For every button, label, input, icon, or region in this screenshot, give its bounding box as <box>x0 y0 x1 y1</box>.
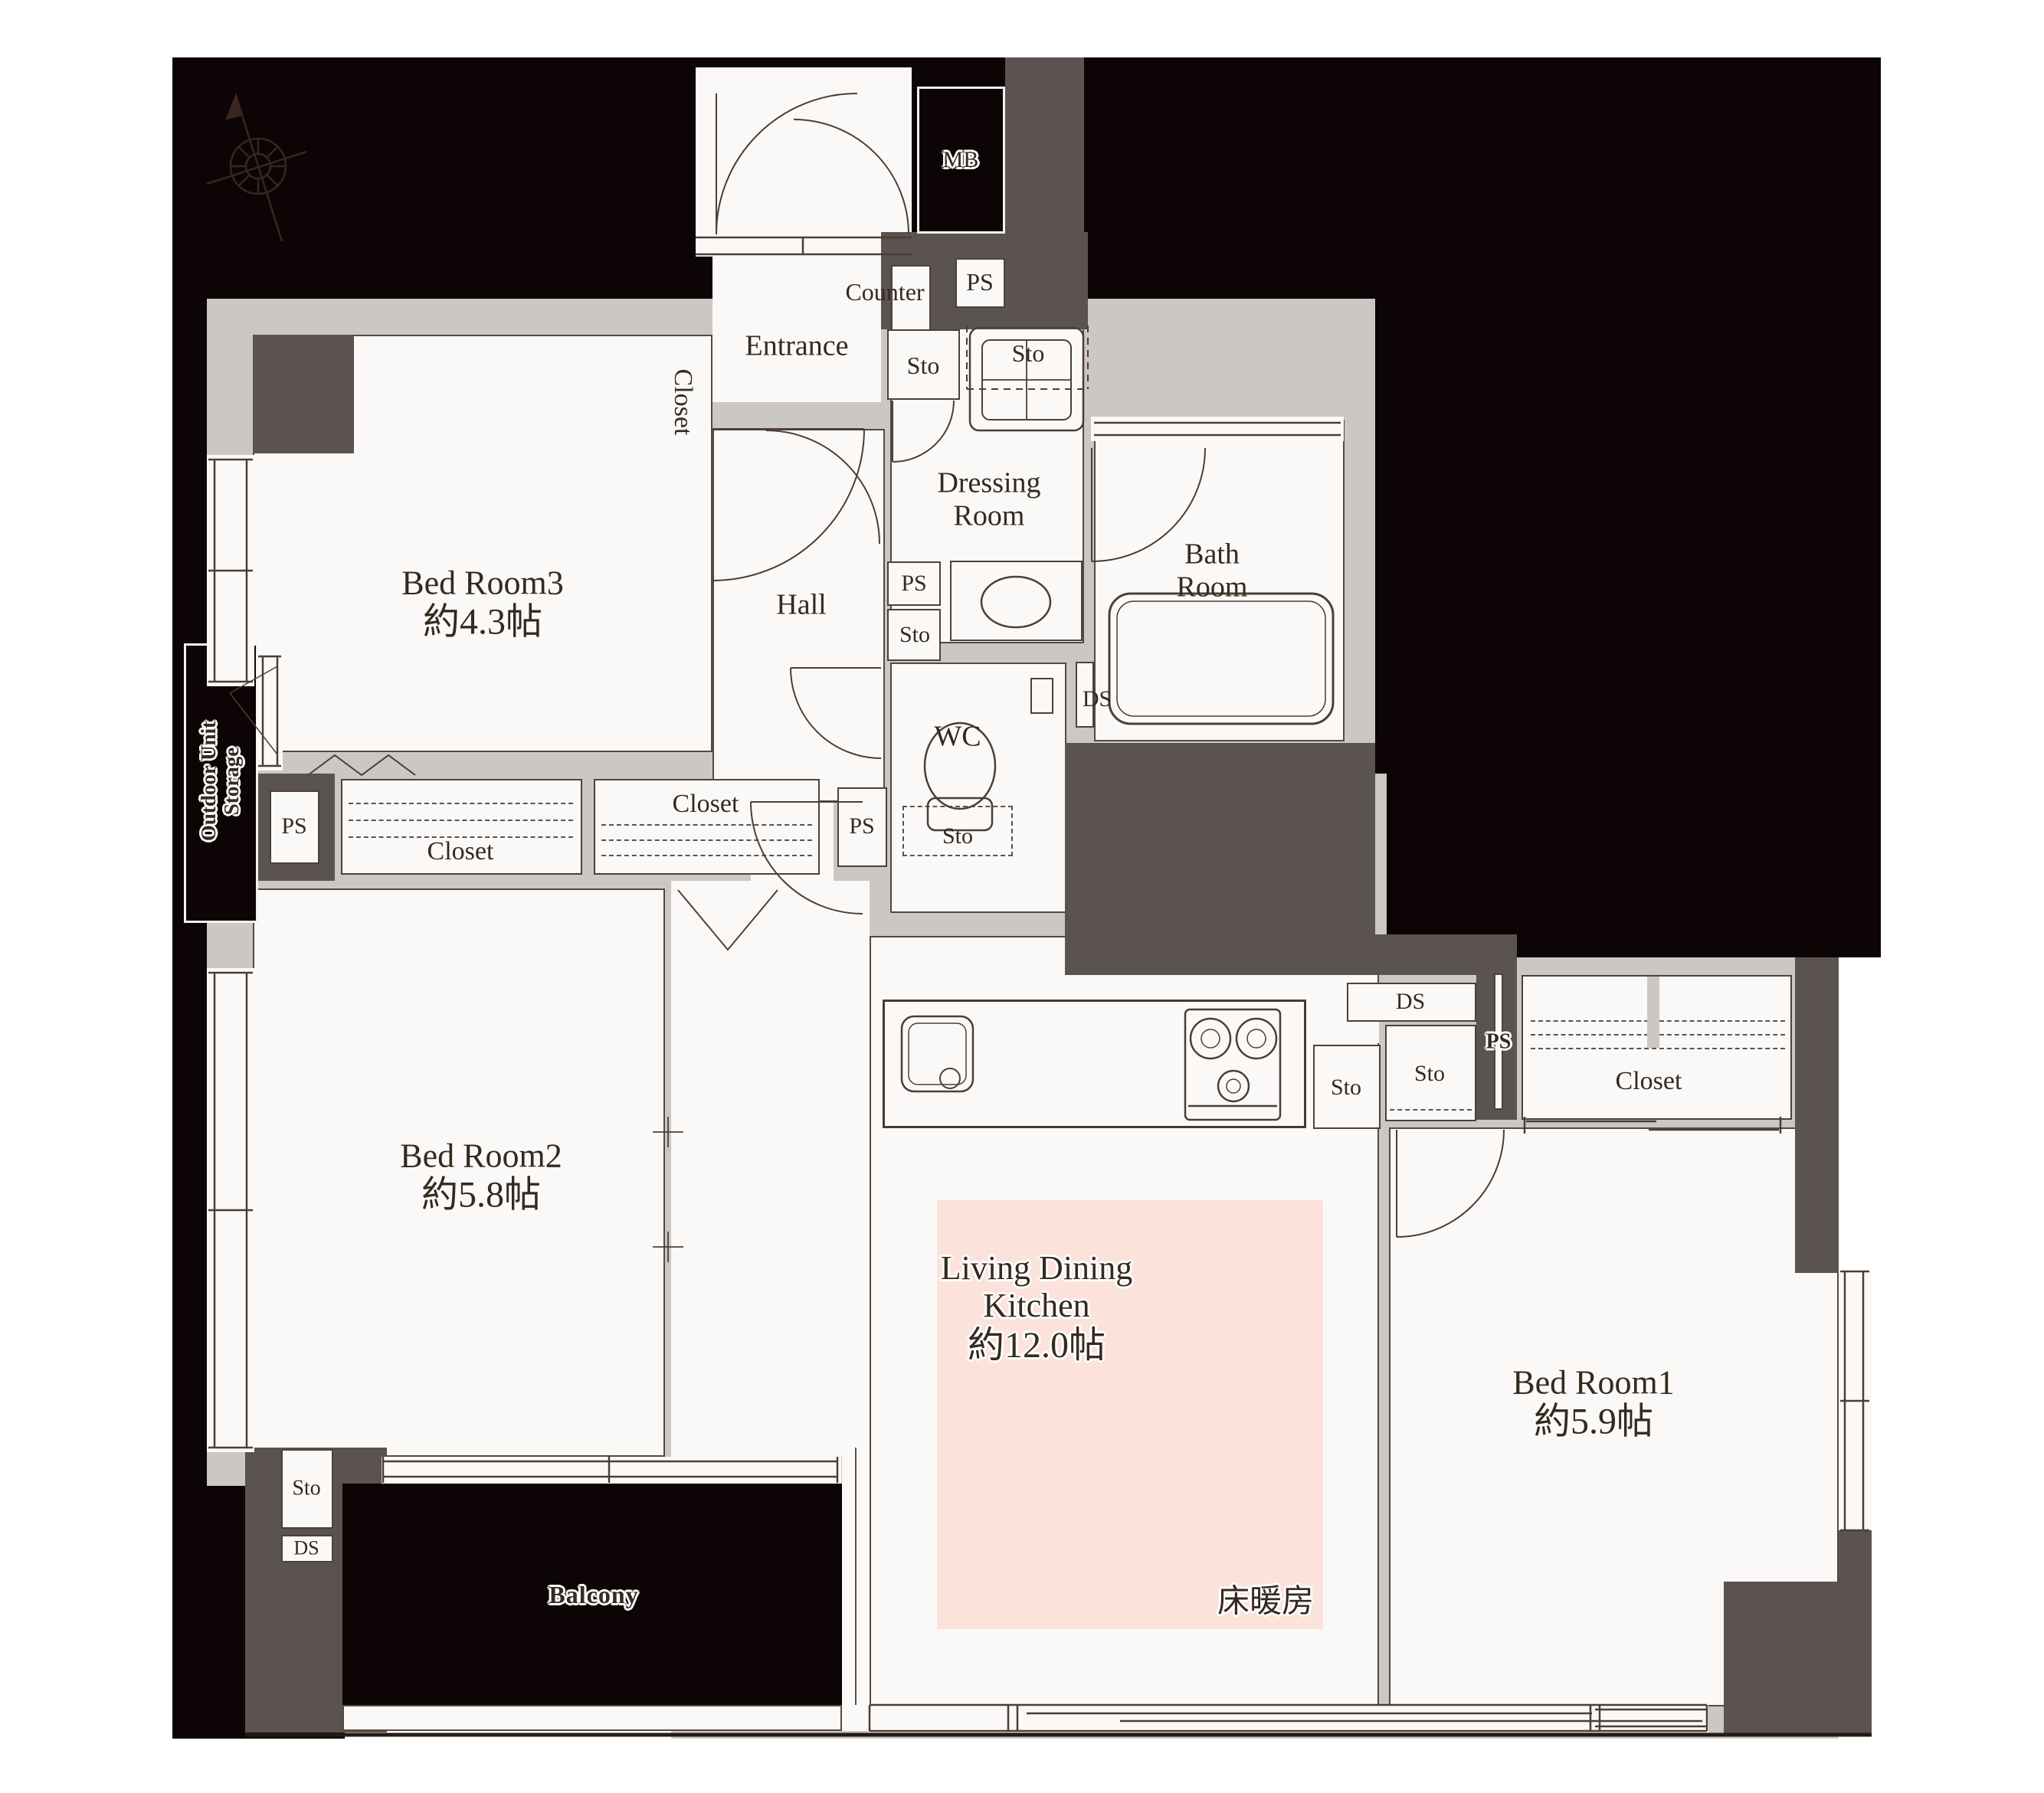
linework-layer <box>0 0 2044 1793</box>
window-icon-bedroom2-south <box>383 1457 837 1483</box>
dressing-room-label: Dressing Room <box>916 466 1062 532</box>
ps-label-top: PS <box>966 269 994 296</box>
floor-heating-label: 床暖房 <box>1217 1584 1314 1620</box>
door-arc-bedroom1 <box>1397 1130 1504 1237</box>
door-arc-entrance <box>716 93 909 234</box>
ds-label-bottom-left: DS <box>293 1536 319 1559</box>
ldk-label: Living Dining Kitchen 約12.0帖 <box>941 1249 1133 1366</box>
bedroom3-label: Bed Room3 約4.3帖 <box>401 564 563 643</box>
door-arc-dressing <box>893 401 954 462</box>
floor-plan: MB PS Counter Entrance Sto Sto Dressing … <box>0 0 2044 1793</box>
window-icon-bedroom1-south <box>1595 1710 1707 1726</box>
door-arc-bedroom3 <box>712 429 864 581</box>
bedroom3-size: 約4.3帖 <box>401 602 563 643</box>
entrance-sill <box>696 237 912 254</box>
window-icon-ldk-south <box>870 1705 1707 1731</box>
sto-label-kitchen-large: Sto <box>1414 1061 1445 1087</box>
window-icon-bedroom3-west <box>208 460 253 682</box>
counter-label: Counter <box>845 279 924 306</box>
window-icon-bedroom2-west <box>208 973 253 1448</box>
partition-tick-marks <box>653 1117 856 1705</box>
outdoor-unit-storage-label: Outdoor Unit Storage <box>197 721 243 841</box>
door-arc-bedroom2 <box>751 802 863 914</box>
sto-label-wc: Sto <box>942 823 973 849</box>
mb-label: MB <box>943 147 979 173</box>
wc-label: WC <box>934 721 981 754</box>
bedroom2-label: Bed Room2 約5.8帖 <box>400 1137 562 1216</box>
window-icon-bath-north <box>1094 423 1341 435</box>
ps-label-right: PS <box>1486 1029 1512 1053</box>
ps-label-left: PS <box>281 813 306 839</box>
hall-label: Hall <box>776 589 826 622</box>
closet-label-bedroom3: Closet <box>668 369 697 436</box>
door-arc-wc <box>791 668 881 758</box>
bath-room-label: Bath Room <box>1162 538 1262 603</box>
bedroom1-label: Bed Room1 約5.9帖 <box>1512 1363 1674 1442</box>
outdoor-unit-storage-line2: Storage <box>220 721 243 841</box>
sto-label-kitchen-small: Sto <box>1331 1075 1361 1101</box>
bedroom2-name: Bed Room2 <box>400 1137 562 1174</box>
compass-icon <box>207 96 306 241</box>
ldk-size: 約12.0帖 <box>941 1324 1133 1366</box>
closet-label-bedroom1: Closet <box>1616 1067 1682 1096</box>
sto-label-hall: Sto <box>899 622 930 648</box>
bedroom1-name: Bed Room1 <box>1512 1363 1674 1401</box>
sto-label-entrance: Sto <box>907 352 940 380</box>
entrance-label: Entrance <box>745 330 848 363</box>
ps-label-hall: PS <box>901 571 926 597</box>
closet-a-label: Closet <box>427 837 494 866</box>
sto-label-bottom-left: Sto <box>292 1476 320 1500</box>
washbasin-icon <box>981 577 1050 627</box>
sink-icon <box>902 1016 973 1091</box>
bedroom3-name: Bed Room3 <box>401 564 563 601</box>
bedroom1-size: 約5.9帖 <box>1512 1402 1674 1443</box>
folding-door-marks <box>308 755 778 950</box>
bathtub-icon <box>1109 594 1333 724</box>
stove-icon <box>1185 1009 1280 1120</box>
balcony-label: Balcony <box>549 1582 638 1609</box>
ldk-name-line2: Kitchen <box>941 1287 1133 1324</box>
ps-label-mid: PS <box>849 813 874 839</box>
ldk-name-line1: Living Dining <box>941 1249 1133 1287</box>
sto-label-washer: Sto <box>1012 340 1045 368</box>
window-icon-bedroom1-east <box>1840 1271 1869 1530</box>
ds-label-wc: DS <box>1083 686 1112 712</box>
bedroom2-size: 約5.8帖 <box>400 1175 562 1216</box>
closet-b-label: Closet <box>673 790 739 819</box>
sliding-door-icon-closet-br1 <box>1525 1117 1780 1134</box>
outdoor-unit-storage-line1: Outdoor Unit <box>197 721 220 841</box>
ds-label-kitchen: DS <box>1396 989 1425 1015</box>
